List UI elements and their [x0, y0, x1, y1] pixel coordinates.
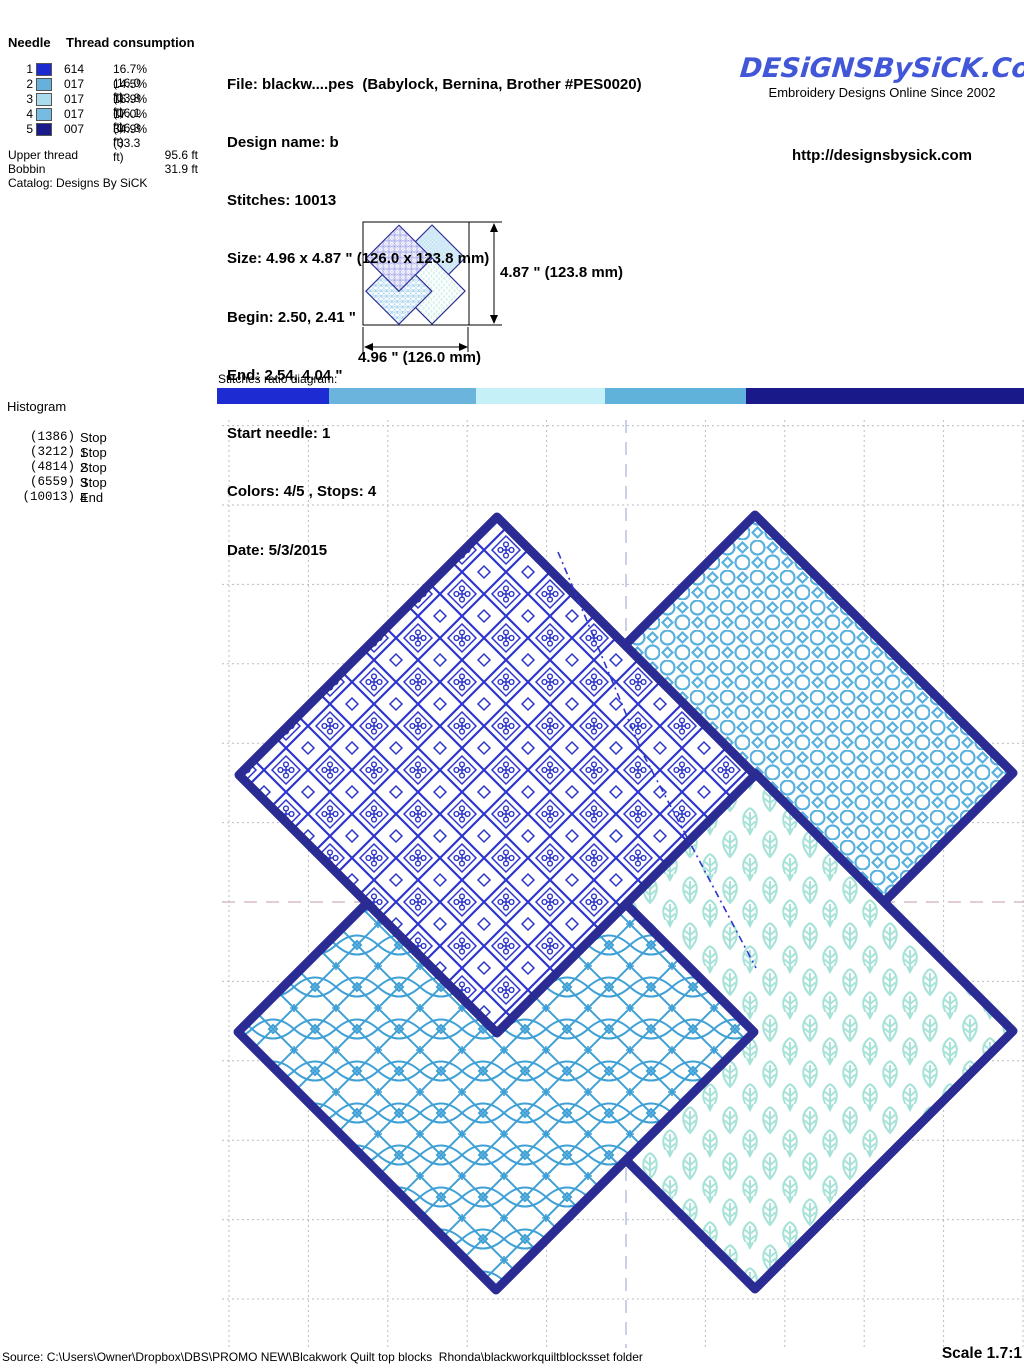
catalog-line: Catalog: Designs By SiCK [8, 176, 147, 190]
width-dimension-label: 4.96 " (126.0 mm) [358, 349, 481, 366]
thread-code: 017 [64, 92, 84, 106]
bobbin-value: 31.9 ft [118, 162, 198, 176]
stitches-ratio-label: Stitches ratio diagram: [218, 372, 337, 386]
thread-column-header: Thread consumption [66, 35, 195, 50]
info-file: File: blackw....pes (Babylock, Bernina, … [227, 75, 642, 94]
thread-code: 614 [64, 62, 84, 76]
stitch-count: (10013) [4, 490, 75, 504]
thread-color-swatch [36, 78, 52, 91]
stitch-count: (6559) [4, 475, 75, 489]
height-dimension-label: 4.87 " (123.8 mm) [500, 264, 623, 281]
stitch-count: (1386) [4, 430, 75, 444]
brand-tagline: Embroidery Designs Online Since 2002 [740, 85, 1024, 100]
source-path: Source: C:\Users\Owner\Dropbox\DBS\PROMO… [2, 1350, 643, 1364]
upper-thread-value: 95.6 ft [118, 148, 198, 162]
ratio-segment-2 [329, 388, 476, 404]
upper-thread-row: Upper thread 95.6 ft [8, 148, 78, 162]
needle-number: 5 [8, 122, 33, 136]
thread-color-swatch [36, 63, 52, 76]
needle-number: 4 [8, 107, 33, 121]
bobbin-label: Bobbin [8, 162, 45, 176]
stitch-count: (3212) [4, 445, 75, 459]
ratio-segment-3 [476, 388, 605, 404]
brand-logo-text: DESiGNSBySiCK.CoM [739, 53, 1024, 84]
thread-color-swatch [36, 123, 52, 136]
print-preview-page: Needle Thread consumption 1 614 16.7% (1… [0, 0, 1024, 1370]
brand-logo: DESiGNSBySiCK.CoM Embroidery Designs Onl… [740, 53, 1024, 100]
info-begin: Begin: 2.50, 2.41 " [227, 308, 642, 327]
ratio-segment-4 [605, 388, 746, 404]
needle-column-header: Needle [8, 35, 51, 50]
info-start-needle: Start needle: 1 [227, 424, 642, 443]
thread-color-swatch [36, 93, 52, 106]
needle-number: 2 [8, 77, 33, 91]
bobbin-row: Bobbin 31.9 ft [8, 162, 45, 176]
ratio-segment-5 [746, 388, 1024, 404]
needle-number: 3 [8, 92, 33, 106]
histogram-title: Histogram [7, 399, 66, 414]
brand-url: http://designsbysick.com [740, 147, 1024, 164]
upper-thread-label: Upper thread [8, 148, 78, 162]
stitches-ratio-bar [217, 388, 1024, 404]
thread-color-swatch [36, 108, 52, 121]
thread-code: 017 [64, 77, 84, 91]
info-stitches: Stitches: 10013 [227, 191, 642, 210]
file-info-block: File: blackw....pes (Babylock, Bernina, … [227, 36, 642, 599]
info-date: Date: 5/3/2015 [227, 541, 642, 560]
thread-code: 007 [64, 122, 84, 136]
needle-number: 1 [8, 62, 33, 76]
scale-label: Scale 1.7:1 [942, 1345, 1022, 1363]
stop-label: End [80, 490, 103, 505]
info-design-name: Design name: b [227, 133, 642, 152]
info-colors-stops: Colors: 4/5 , Stops: 4 [227, 482, 642, 501]
stitch-count: (4814) [4, 460, 75, 474]
thread-code: 017 [64, 107, 84, 121]
ratio-segment-1 [217, 388, 329, 404]
